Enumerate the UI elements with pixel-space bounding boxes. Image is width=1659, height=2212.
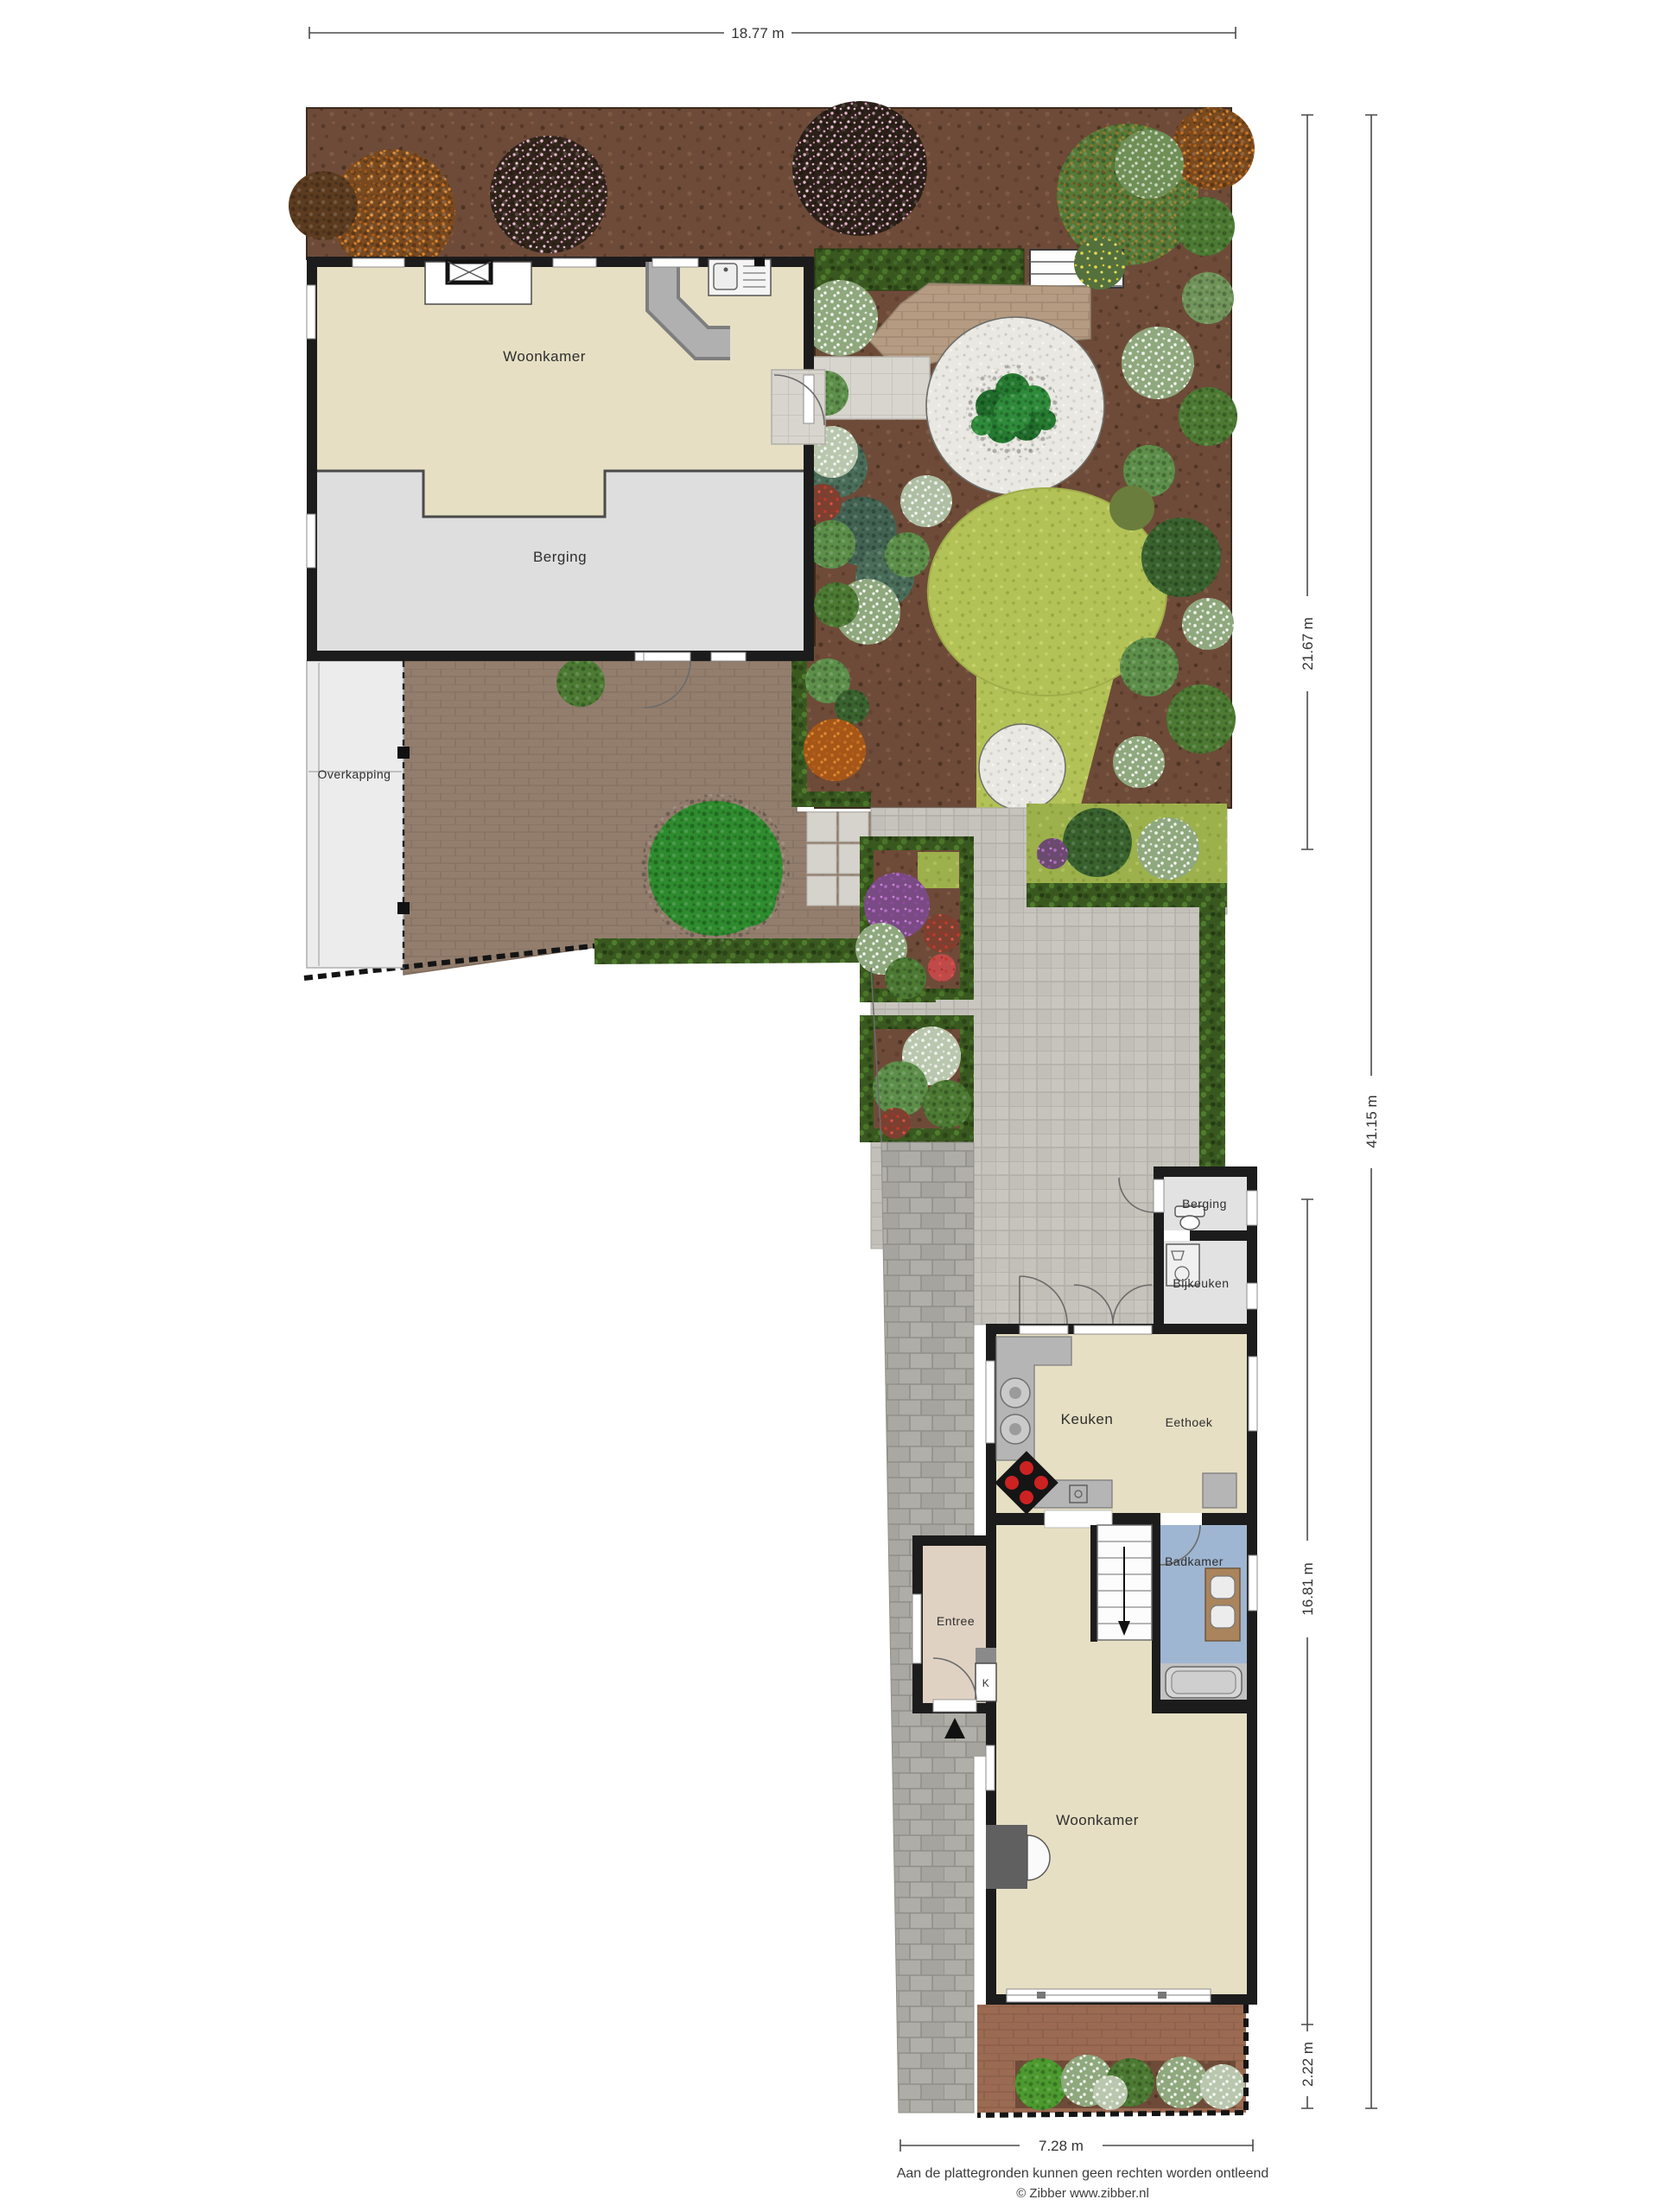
side-porch — [772, 370, 825, 444]
tree-blossom-1 — [490, 136, 607, 253]
window-berging-2 — [711, 652, 746, 661]
window-top-3 — [652, 258, 698, 267]
label-closet-k: K — [982, 1677, 990, 1689]
dimension-right-house: 16.81 m — [1300, 1199, 1316, 2024]
dimension-right-front: 2.22 m — [1300, 2024, 1316, 2108]
overkapping-area — [307, 661, 410, 968]
label-badkamer: Badkamer — [1165, 1554, 1224, 1568]
label-eethoek: Eethoek — [1166, 1415, 1213, 1429]
label-woonkamer-lower: Woonkamer — [1056, 1812, 1139, 1828]
dim-right-house-label: 16.81 m — [1300, 1562, 1316, 1615]
stairs-lower-house — [1090, 1525, 1152, 1642]
label-berging-annex: Berging — [1182, 1197, 1227, 1211]
window-top-1 — [353, 258, 404, 267]
woonkamer-bottom-window — [1007, 1989, 1211, 2002]
patio-door-gap — [644, 652, 690, 661]
dim-right-front-label: 2.22 m — [1300, 2042, 1316, 2087]
dim-right-upper-label: 21.67 m — [1300, 617, 1316, 670]
label-overkapping: Overkapping — [318, 767, 391, 781]
dimension-right-total: 41.15 m — [1363, 115, 1380, 2108]
dim-top-label: 18.77 m — [731, 25, 784, 41]
window-left-2 — [307, 514, 315, 568]
badkamer-door-gap — [1160, 1513, 1202, 1525]
room-woonkamer-top — [317, 267, 804, 471]
keuken-door-gap-single — [1020, 1325, 1068, 1334]
overkapping-post-1 — [397, 747, 410, 759]
dim-bottom-label: 7.28 m — [1039, 2138, 1084, 2154]
gravel-circle-shrub — [966, 365, 1059, 458]
dimension-bottom: 7.28 m — [900, 2138, 1253, 2154]
keuken-window-left — [986, 1361, 995, 1443]
flower-bed-a — [855, 836, 974, 1002]
label-berging-top: Berging — [533, 549, 587, 565]
patio-zone — [304, 646, 871, 978]
woonkamer-top-extension — [423, 471, 605, 517]
hedge-path-right — [1199, 883, 1225, 1173]
shrub-dark-left-edge — [289, 171, 358, 240]
vanity-icon — [1205, 1568, 1240, 1641]
annex-window-2 — [1247, 1283, 1257, 1309]
gravel-circle-large — [926, 317, 1104, 495]
flower-bed-b — [860, 1015, 974, 1142]
dimension-right-upper: 21.67 m — [1300, 115, 1316, 849]
front-garden — [977, 2005, 1246, 2115]
skylight-void — [425, 262, 531, 304]
annex-window-1 — [1247, 1191, 1257, 1225]
eethoek-cabinet — [1203, 1473, 1236, 1508]
label-entree: Entree — [937, 1614, 975, 1628]
tree-orange-right — [1172, 107, 1255, 190]
window-top-2 — [553, 258, 596, 267]
badkamer-left-wall — [1152, 1525, 1160, 1700]
closet-k: K — [976, 1648, 996, 1701]
eethoek-window-right — [1249, 1357, 1257, 1431]
floor-plan-canvas: Woonkamer Berging Overkapping — [0, 0, 1659, 2212]
patio-shrub-small — [556, 658, 605, 707]
woonkamer-window-left — [986, 1745, 995, 1790]
gravel-circle-small — [979, 724, 1065, 810]
dim-right-total-label: 41.15 m — [1363, 1095, 1380, 1147]
window-left-1 — [307, 285, 315, 339]
tree-blossom-2 — [792, 101, 927, 236]
footer: Aan de plattegronden kunnen geen rechten… — [897, 2166, 1269, 2201]
footer-disclaimer: Aan de plattegronden kunnen geen rechten… — [897, 2166, 1269, 2181]
dimension-top: 18.77 m — [309, 25, 1236, 41]
front-door-gap — [933, 1700, 976, 1712]
hedge-grassbed-bottom — [1027, 883, 1227, 907]
keuken-door-gap-double — [1074, 1325, 1152, 1334]
footer-credit: © Zibber www.zibber.nl — [1016, 2186, 1149, 2201]
entree-window — [912, 1594, 921, 1663]
label-keuken: Keuken — [1061, 1411, 1114, 1427]
badkamer-window-right — [1249, 1555, 1257, 1611]
patio-tree-large — [641, 794, 790, 943]
porch-door-gap — [804, 375, 814, 423]
badkamer-bottom-wall — [1152, 1700, 1247, 1713]
flower-bed-right-of-patio — [791, 646, 871, 807]
floor-plan-page: Woonkamer Berging Overkapping — [0, 0, 1659, 2212]
annex-entry-gap — [1154, 1179, 1164, 1212]
label-woonkamer-top: Woonkamer — [503, 348, 586, 365]
annex-inner-door-gap — [1164, 1230, 1190, 1241]
label-bijkeuken: Bijkeuken — [1173, 1276, 1229, 1290]
bathtub-icon — [1166, 1667, 1242, 1698]
overkapping-post-2 — [397, 902, 410, 914]
hedge-patio-bottom — [594, 938, 871, 964]
grass-bed — [1027, 804, 1227, 885]
wall-vent — [754, 257, 765, 266]
